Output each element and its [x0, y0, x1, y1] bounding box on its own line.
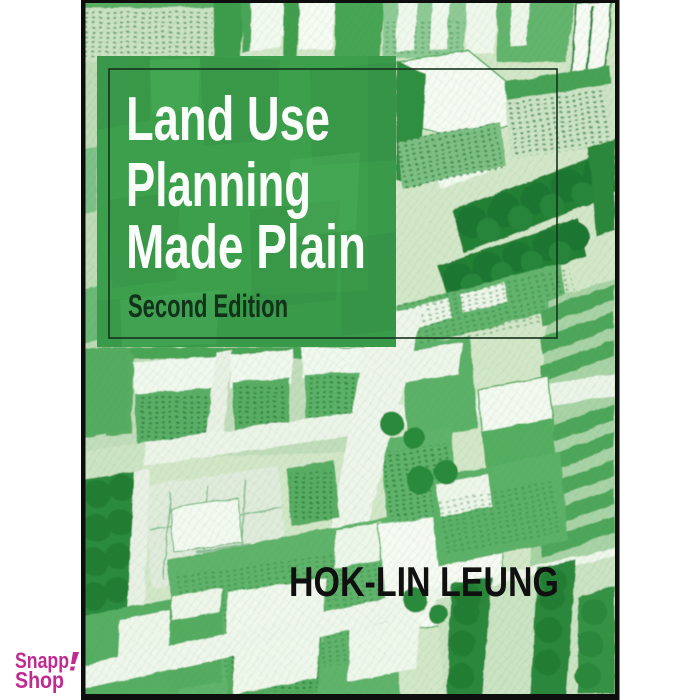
svg-text:Land Use: Land Use [126, 85, 330, 154]
svg-text:HOK-LIN LEUNG: HOK-LIN LEUNG [289, 558, 559, 605]
svg-text:Shop: Shop [15, 667, 64, 693]
svg-text:Made Plain: Made Plain [126, 213, 366, 282]
svg-text:Planning: Planning [126, 151, 311, 220]
svg-text:Second Edition: Second Edition [128, 288, 288, 324]
